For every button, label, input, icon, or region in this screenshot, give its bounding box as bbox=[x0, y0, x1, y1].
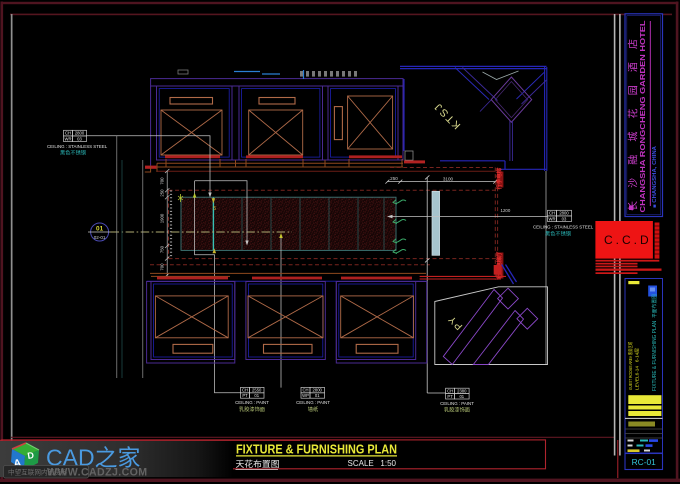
svg-text:5: 5 bbox=[213, 206, 216, 212]
svg-text:03: 03 bbox=[77, 136, 82, 141]
svg-text:C.C.D: C.C.D bbox=[604, 233, 652, 247]
svg-text:天花布置图: 天花布置图 bbox=[236, 458, 280, 469]
svg-text:行李电梯: 行李电梯 bbox=[495, 167, 503, 190]
svg-text:乳胶漆饰面: 乳胶漆饰面 bbox=[444, 406, 470, 414]
svg-text:03: 03 bbox=[562, 216, 567, 221]
svg-text:CH: CH bbox=[549, 211, 555, 216]
svg-text:黑色不锈钢: 黑色不锈钢 bbox=[60, 148, 86, 156]
svg-text:CH: CH bbox=[65, 131, 71, 136]
svg-text:PT: PT bbox=[242, 393, 248, 398]
svg-text:CH: CH bbox=[447, 389, 453, 394]
svg-text:SCALE 1:50: SCALE 1:50 bbox=[348, 459, 397, 468]
svg-text:WP: WP bbox=[302, 393, 309, 398]
svg-text:2800: 2800 bbox=[313, 388, 323, 393]
svg-text:CEILING : PAINT: CEILING : PAINT bbox=[440, 401, 474, 406]
svg-text:CHANGSHA RONGCHENG GARDEN HOTE: CHANGSHA RONGCHENG GARDEN HOTEL bbox=[638, 20, 647, 213]
svg-text:700: 700 bbox=[160, 177, 165, 185]
svg-text:RC-01: RC-01 bbox=[632, 457, 657, 467]
svg-text:2380: 2380 bbox=[457, 389, 467, 394]
svg-text:02-01: 02-01 bbox=[94, 235, 106, 240]
svg-text:CH: CH bbox=[242, 388, 248, 393]
svg-text:2800: 2800 bbox=[559, 211, 569, 216]
svg-text:3100: 3100 bbox=[443, 177, 454, 182]
svg-text:墙纸: 墙纸 bbox=[308, 405, 318, 413]
svg-text:CEILING : STAINLESS STEEL: CEILING : STAINLESS STEEL bbox=[533, 225, 594, 230]
svg-text:1200: 1200 bbox=[501, 208, 511, 213]
svg-text:2800: 2800 bbox=[75, 131, 85, 136]
svg-text:CEILING : PAINT: CEILING : PAINT bbox=[235, 400, 269, 405]
svg-text:CEILING : STAINLESS STEEL: CEILING : STAINLESS STEEL bbox=[47, 144, 108, 149]
svg-text:FIXTURE & FURNISHING PLAN 平面布: FIXTURE & FURNISHING PLAN 平面布置图 bbox=[651, 294, 658, 391]
svg-text:CEILING : PAINT: CEILING : PAINT bbox=[296, 400, 330, 405]
svg-text:750: 750 bbox=[160, 245, 165, 253]
svg-text:WR: WR bbox=[549, 216, 556, 221]
svg-text:WR: WR bbox=[65, 136, 72, 141]
svg-text:01: 01 bbox=[459, 394, 464, 399]
svg-text:250: 250 bbox=[390, 176, 398, 181]
svg-text:01: 01 bbox=[254, 393, 259, 398]
svg-text:250: 250 bbox=[160, 189, 165, 197]
svg-text:01: 01 bbox=[96, 226, 104, 233]
svg-text:FIXTURE & FURNISHING PLAN: FIXTURE & FURNISHING PLAN bbox=[236, 442, 397, 457]
svg-text:PT: PT bbox=[447, 394, 453, 399]
svg-text:2550: 2550 bbox=[252, 388, 262, 393]
svg-text:700: 700 bbox=[160, 263, 165, 271]
svg-text:■ CHANGSHA, CHINA: ■ CHANGSHA, CHINA bbox=[652, 146, 658, 208]
svg-text:1900: 1900 bbox=[160, 213, 165, 223]
svg-text:CH: CH bbox=[302, 388, 308, 393]
svg-text:黑色不锈钢: 黑色不锈钢 bbox=[545, 230, 571, 238]
svg-text:乳胶漆饰面: 乳胶漆饰面 bbox=[239, 405, 265, 413]
svg-text:WWW.CADZJ.COM: WWW.CADZJ.COM bbox=[47, 467, 148, 479]
svg-text:01: 01 bbox=[315, 393, 320, 398]
svg-text:GUEST ROOMS AREA 客房区域: GUEST ROOMS AREA 客房区域 bbox=[627, 342, 634, 390]
